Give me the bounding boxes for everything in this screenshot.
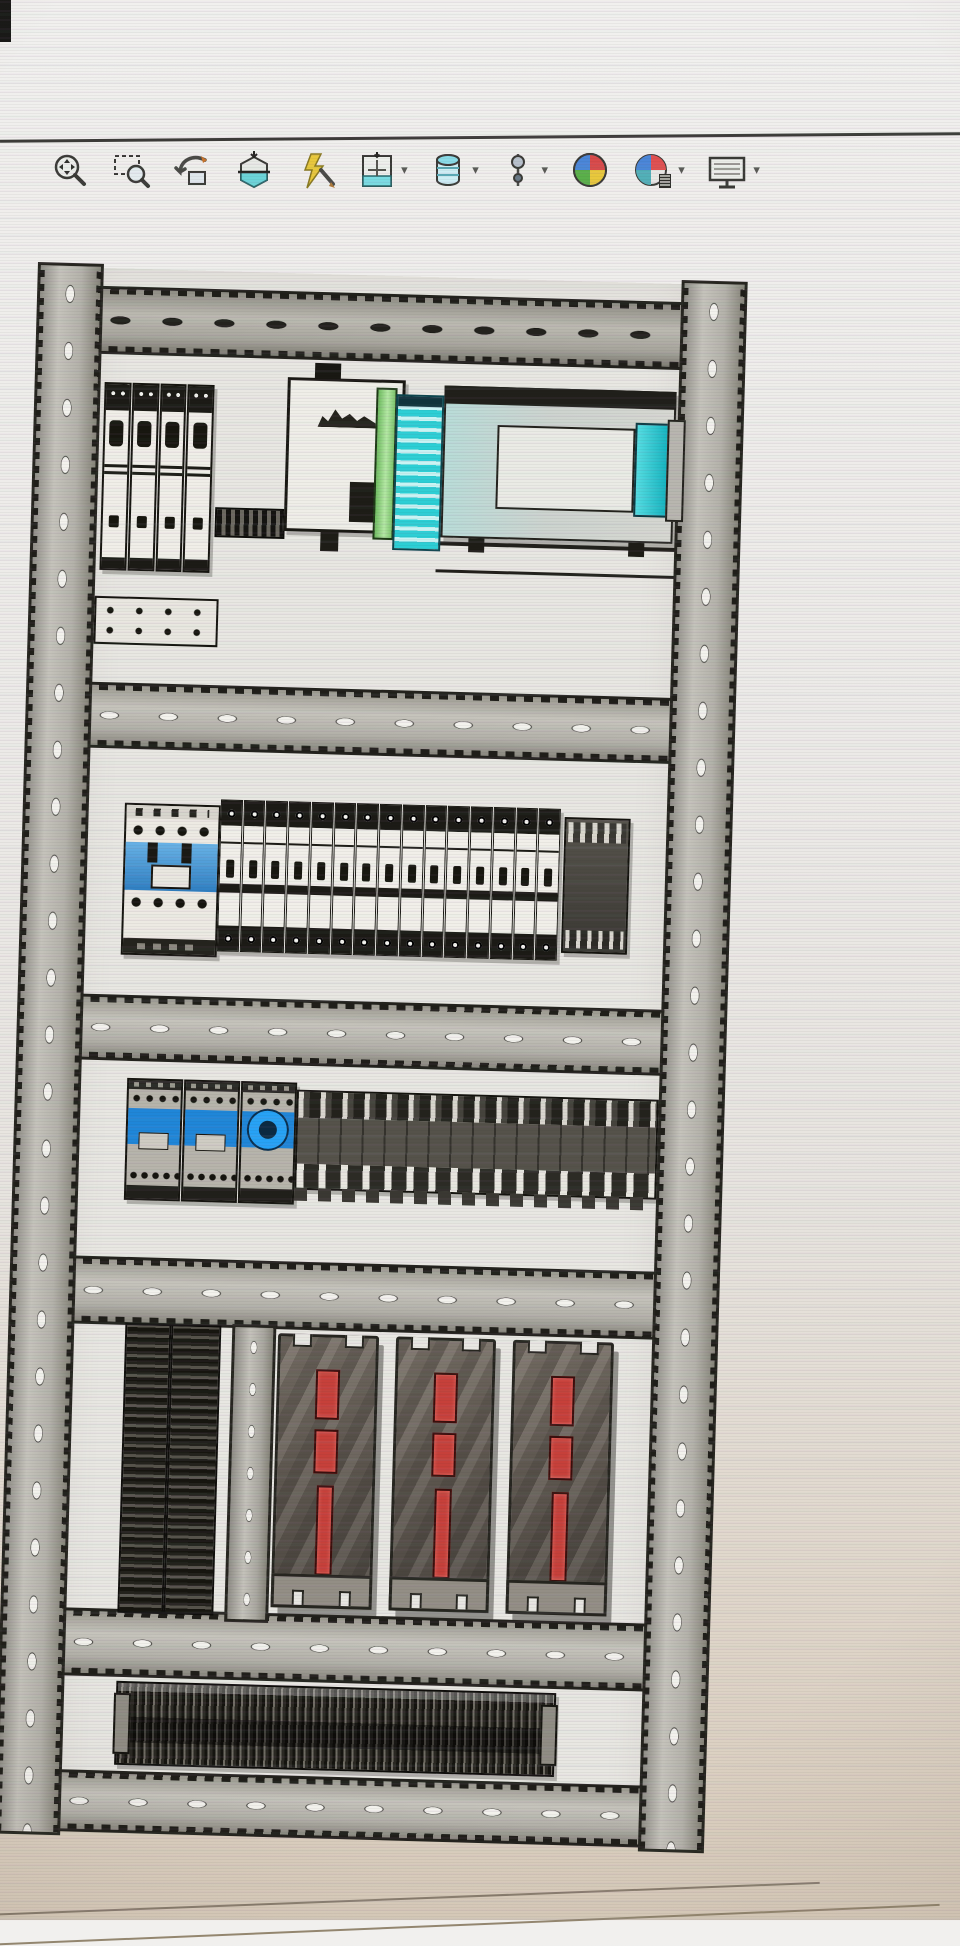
dropdown-caret[interactable]: ▾ — [541, 150, 548, 190]
breaker-bottom-cap — [241, 926, 261, 952]
breaker-bottom-cap — [185, 559, 208, 571]
drive-indicator-bar — [432, 1489, 452, 1579]
breaker-top-cap — [426, 806, 446, 832]
terminal-strip-vertical[interactable] — [163, 1324, 221, 1615]
hide-show-items-icon[interactable]: ▾ — [498, 148, 548, 194]
circuit-breaker[interactable] — [183, 384, 215, 573]
breaker-bottom-cap — [377, 930, 397, 956]
contactor-screws — [124, 890, 217, 917]
breaker-bottom-cap — [513, 934, 533, 960]
breaker-top-cap — [267, 802, 287, 828]
terminal-end-cap — [539, 1704, 558, 1766]
breaker-bottom-cap — [101, 557, 124, 569]
distribution-breaker-row[interactable] — [217, 799, 561, 960]
breaker-body — [491, 833, 514, 934]
zoom-to-area-icon[interactable] — [110, 148, 152, 194]
drive-display — [550, 1376, 575, 1427]
section-view-icon[interactable] — [233, 148, 275, 194]
breaker-top-cap — [134, 385, 157, 412]
breaker-top-cap — [449, 807, 469, 833]
breaker-lower-body — [157, 478, 182, 560]
rack-foot — [628, 543, 644, 557]
circuit-breaker[interactable] — [308, 802, 334, 955]
breaker-bottom-cap — [491, 933, 511, 959]
zoom-to-fit-icon[interactable] — [48, 148, 90, 194]
breaker-toggle[interactable] — [104, 410, 128, 463]
rack-foot — [468, 538, 484, 552]
drive-display — [315, 1369, 340, 1420]
main-contactor[interactable] — [121, 803, 221, 958]
drive-vent-notch — [580, 1342, 599, 1356]
relay-terminal-strip[interactable] — [294, 1090, 659, 1200]
circuit-breaker[interactable] — [467, 806, 493, 959]
circuit-breaker[interactable] — [285, 801, 311, 954]
breaker-lower-body — [130, 477, 155, 559]
breaker-top-cap — [539, 809, 559, 835]
drive-base — [271, 1573, 373, 1610]
contactor-label — [123, 938, 215, 956]
servo-drive[interactable] — [271, 1333, 379, 1610]
motor-contactor[interactable] — [238, 1081, 297, 1205]
contactor-screws — [183, 1167, 236, 1187]
contactor-base — [183, 1186, 235, 1200]
circuit-breaker[interactable] — [399, 804, 425, 957]
terminal-strip-vertical[interactable] — [117, 1323, 171, 1614]
breaker-top-cap — [221, 800, 241, 826]
rack-end-module — [633, 423, 670, 518]
breaker-top-cap — [471, 807, 491, 833]
dropdown-caret[interactable]: ▾ — [401, 150, 408, 190]
dropdown-caret[interactable]: ▾ — [678, 150, 685, 190]
photo-edge-mark — [0, 0, 11, 42]
breaker-top-cap — [106, 384, 129, 411]
contactor-screws — [126, 1166, 179, 1186]
drive-vent-notch — [462, 1338, 481, 1352]
contactor-blue-band — [241, 1111, 294, 1148]
contactor-blue-band — [184, 1110, 237, 1147]
drive-base — [506, 1580, 608, 1617]
rack-cover-plate — [495, 425, 635, 513]
breaker-top-cap — [161, 386, 184, 413]
breaker-markings — [160, 464, 183, 479]
breaker-body — [400, 830, 423, 931]
breaker-top-cap — [494, 808, 514, 834]
servo-drive[interactable] — [506, 1340, 614, 1617]
breaker-top-cap — [312, 803, 332, 829]
breaker-body — [287, 827, 310, 928]
servo-drive-group[interactable] — [271, 1333, 615, 1616]
dropdown-caret[interactable]: ▾ — [472, 150, 479, 190]
terminal-end-cap — [112, 1692, 131, 1754]
circuit-breaker[interactable] — [353, 803, 379, 956]
plc-extension-rack[interactable] — [440, 385, 676, 543]
breaker-bottom-cap — [286, 927, 306, 953]
contactor-screws — [185, 1091, 238, 1111]
terminal-block-group[interactable] — [561, 817, 631, 955]
breaker-terminal-row[interactable] — [93, 596, 218, 647]
breaker-bottom-cap — [400, 930, 420, 956]
screen-bottom-edge — [0, 1904, 940, 1946]
circuit-breaker[interactable] — [262, 801, 288, 954]
circuit-breaker[interactable] — [376, 804, 402, 957]
circuit-breaker[interactable] — [330, 803, 356, 956]
breaker-top-cap — [517, 809, 537, 835]
terminal-strip-horizontal[interactable] — [114, 1681, 556, 1777]
circuit-breaker[interactable] — [155, 384, 187, 573]
breaker-markings — [104, 462, 127, 477]
previous-view-icon[interactable] — [171, 148, 213, 194]
plc-top-clip — [315, 363, 341, 380]
view-settings-icon[interactable]: ▾ — [704, 148, 760, 194]
edit-appearance-icon[interactable] — [568, 148, 612, 194]
breaker-bottom-cap — [129, 558, 152, 570]
drive-vent-notch — [293, 1334, 312, 1348]
breaker-markings — [132, 463, 155, 478]
circuit-breaker[interactable] — [421, 805, 447, 958]
plc-logo — [318, 407, 377, 429]
servo-drive[interactable] — [388, 1336, 496, 1613]
breaker-toggle[interactable] — [160, 412, 184, 465]
plc-foot — [320, 531, 339, 551]
breaker-top-cap — [380, 805, 400, 831]
drive-vent-notch — [528, 1340, 547, 1354]
drive-indicator-bar — [314, 1485, 334, 1575]
breaker-bottom-cap — [263, 927, 283, 953]
breaker-bottom-cap — [157, 559, 180, 571]
display-style-icon[interactable]: ▾ — [427, 148, 479, 194]
drive-display — [432, 1373, 457, 1424]
breaker-body — [423, 831, 446, 932]
breaker-body — [309, 828, 332, 929]
circuit-breaker[interactable] — [512, 808, 538, 961]
breaker-body — [264, 827, 287, 928]
contactor-screws — [240, 1169, 293, 1189]
motor-contactor[interactable] — [181, 1079, 240, 1203]
plc-io-module[interactable] — [392, 394, 444, 551]
main-breaker-group[interactable] — [99, 382, 214, 573]
circuit-breaker[interactable] — [240, 800, 266, 953]
motor-contactor-group[interactable] — [124, 1078, 297, 1205]
contactor-screws — [126, 818, 219, 845]
contactor-base — [126, 1185, 178, 1199]
breaker-bottom-cap — [354, 929, 374, 955]
breaker-body — [219, 825, 242, 926]
breaker-lower-body — [185, 478, 210, 560]
view-toolbar: ▾ ▾ ▾ — [48, 142, 760, 200]
circuit-breaker[interactable] — [99, 382, 131, 571]
breaker-bottom-cap — [422, 931, 442, 957]
contactor-blue-band — [125, 842, 218, 893]
bus-comb-strip[interactable] — [214, 507, 285, 539]
contactor-base — [240, 1188, 292, 1202]
breaker-top-cap — [403, 805, 423, 831]
din-rail-segment[interactable] — [224, 1324, 276, 1623]
breaker-bottom-cap — [468, 932, 488, 958]
breaker-body — [355, 829, 378, 930]
breaker-toggle[interactable] — [132, 411, 156, 464]
circuit-breaker[interactable] — [127, 383, 159, 572]
breaker-body — [332, 829, 355, 930]
drive-base — [388, 1576, 490, 1613]
3d-drawing-view-icon[interactable] — [295, 148, 337, 194]
breaker-bottom-cap — [445, 932, 465, 958]
breaker-top-cap — [358, 804, 378, 830]
circuit-breaker[interactable] — [444, 806, 470, 959]
drive-display — [313, 1429, 338, 1474]
breaker-lower-body — [102, 476, 127, 558]
drive-display — [549, 1436, 574, 1481]
contactor-screws — [242, 1092, 295, 1112]
breaker-markings — [187, 464, 210, 479]
circuit-breaker[interactable] — [535, 808, 561, 961]
contactor-screws — [128, 1089, 181, 1109]
breaker-body — [537, 834, 560, 935]
rack-end-cap — [665, 420, 686, 522]
breaker-toggle[interactable] — [188, 412, 212, 465]
breaker-top-cap — [290, 802, 310, 828]
drive-indicator-bar — [550, 1492, 570, 1582]
breaker-body — [378, 830, 401, 931]
contactor-blue-band — [127, 1108, 180, 1145]
breaker-top-cap — [244, 801, 264, 827]
breaker-body — [446, 832, 469, 933]
breaker-bottom-cap — [218, 925, 238, 951]
breaker-body — [241, 826, 264, 927]
circuit-breaker[interactable] — [490, 807, 516, 960]
breaker-body — [469, 832, 492, 933]
cad-viewport[interactable] — [0, 205, 960, 1905]
drive-vent-notch — [410, 1337, 429, 1351]
drive-display — [431, 1433, 456, 1478]
breaker-body — [514, 834, 537, 935]
motor-contactor[interactable] — [124, 1078, 183, 1202]
drive-vent-notch — [344, 1335, 363, 1349]
circuit-breaker[interactable] — [217, 799, 243, 952]
view-orientation-icon[interactable]: ▾ — [356, 148, 408, 194]
apply-scene-icon[interactable]: ▾ — [631, 148, 685, 194]
electrical-cabinet-model[interactable] — [0, 262, 748, 1851]
breaker-top-cap — [335, 804, 355, 830]
breaker-top-cap — [189, 386, 212, 413]
breaker-bottom-cap — [331, 929, 351, 955]
dropdown-caret[interactable]: ▾ — [753, 150, 760, 190]
breaker-bottom-cap — [309, 928, 329, 954]
breaker-bottom-cap — [536, 934, 556, 960]
